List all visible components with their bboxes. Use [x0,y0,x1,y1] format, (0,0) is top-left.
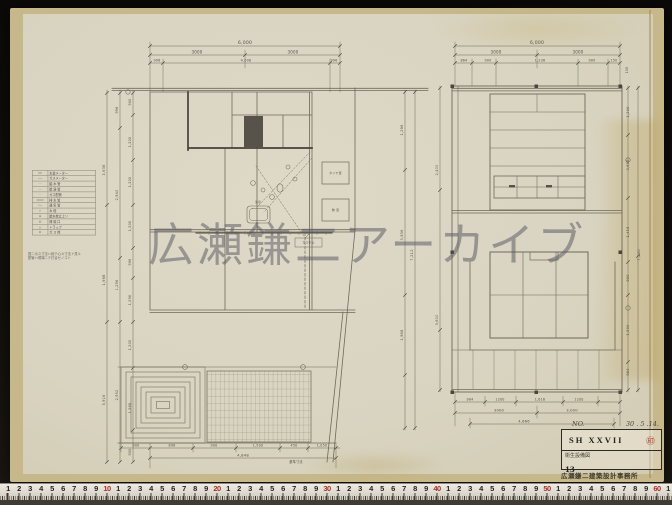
fixture-symbols [251,165,297,199]
dim-label: 3,936 [102,164,106,176]
legend-label: ガ ス 栓 [48,230,96,235]
offset-border [470,262,615,350]
ruler-number: 7 [292,484,296,493]
shaft-fill [244,116,263,147]
ruler-number: 40 [433,484,440,493]
ruler-number: 60 [653,484,660,493]
dim-label: 2,940 [115,190,119,201]
drawing-subtitle: 衛生設備図 [565,452,658,459]
ruler-number: 3 [28,484,32,493]
dim-label: 3,600 [626,159,630,170]
dim-label: 1,296 [115,280,119,291]
ruler-number: 8 [413,484,417,493]
ruler-number: 4 [149,484,153,493]
dim-label: 4,848 [237,453,249,458]
ruler-number: 10 [103,484,110,493]
dim-label: 864 [460,59,467,63]
dim-label: 984 [467,398,474,402]
ruler-number: 8 [523,484,527,493]
dim-label: 1,200 [626,106,630,117]
ruler-number: 5 [490,484,494,493]
dim-label: 1,500 [253,444,263,448]
ruler-number: 7 [622,484,626,493]
dim-label: 900 [484,59,491,63]
dim-label: 450 [291,444,298,448]
dim-label: 3000 [288,50,299,55]
ruler-number: 2 [457,484,461,493]
dim-label: 2,400 [435,165,439,176]
ruler-number: 9 [94,484,98,493]
dim-label: 1,236 [535,59,546,63]
upper-room [490,94,585,210]
dim-label: 1,296 [128,295,132,305]
ruler-number: 8 [193,484,197,493]
ruler-number: 7 [72,484,76,493]
dim-label: 4,666 [518,420,530,424]
ruler-number: 1 [446,484,450,493]
ruler-number: 4 [589,484,593,493]
dim-label: 900 [133,444,140,448]
dim-label: 3000 [491,50,502,55]
drawing-photo: 6,000300030009964,0089963,9361,9685,9169… [0,0,672,505]
date: 30 . 5 .14. [626,420,659,428]
dim-label: 1,500 [626,324,630,335]
ruler-number: 3 [358,484,362,493]
dim-label: 1,968 [128,403,132,413]
dim-label: 基準寸法 [289,459,303,464]
dim-label: 900 [626,274,630,281]
archive-watermark: 広瀬鎌二アーカイブ [148,220,568,272]
ruler-number: 8 [83,484,87,493]
ruler-number: 50 [543,484,550,493]
dim-label: 150 [625,67,629,74]
dim-label: 2,952 [115,390,119,401]
dim-label: 1,416 [626,226,630,237]
ruler-number: 2 [127,484,131,493]
legend-row: ⊙ガ ス 栓 [32,230,95,235]
hatched-grid [207,371,311,442]
ruler-number: 3 [578,484,582,493]
ruler-number: 9 [314,484,318,493]
ruler-number: 4 [259,484,263,493]
dim-label: 3000 [494,409,505,413]
ruler-number: 5 [160,484,164,493]
note-line: 配管ハ現場ニテ打合セノコト [28,256,105,260]
ruler-number: 3 [248,484,252,493]
dim-label: 1,968 [400,329,404,340]
ruler-number: 1 [556,484,560,493]
legend-table: ━━水道メーター──ガスメーター‐ ‐給 水 管-·-給 湯 管····ガス配管… [32,170,96,235]
dim-label: 898 [169,444,176,448]
ruler-number: 7 [182,484,186,493]
dim-label: 1,968 [102,274,106,286]
ruler-number: 1 [666,484,670,493]
site-boundary-line [112,88,428,90]
ruler-number: 9 [644,484,648,493]
ruler-number: 4 [369,484,373,493]
dim-label: 物 置 [332,207,340,212]
ruler-number: 5 [50,484,54,493]
backdrop-strip [0,500,672,505]
dim-label: 浴室 [255,200,261,204]
dim-label: 900 [128,99,132,106]
ruler-number: 8 [303,484,307,493]
dim-label: 996 [115,106,119,113]
ruler-number: 5 [600,484,604,493]
dim-label: 1,050 [317,444,327,448]
measuring-tape: 1234567891012345678920123456789301234567… [0,483,672,500]
dim-label: 996 [153,59,160,63]
ruler-number: 6 [501,484,505,493]
office-stamp: 広瀬鎌二建築設計事務所 [561,470,662,480]
ruler-number: 4 [39,484,43,493]
dim-label: 5,916 [102,395,106,406]
ruler-number: 2 [567,484,571,493]
drawing-title-box: 衛生設備図 13 [561,451,662,470]
ruler-number: 6 [171,484,175,493]
ruler-number: 7 [512,484,516,493]
dim-label: 996 [330,59,337,63]
ruler-number: 1 [116,484,120,493]
dim-label: 996 [128,259,132,266]
dim-label: 900 [588,59,595,63]
dim-label: タイヤ置 [329,170,342,175]
ruler-number: 8 [633,484,637,493]
ruler-number: 6 [61,484,65,493]
dim-label: 3000 [573,50,584,55]
legend-symbol: ⊙ [32,230,48,235]
ruler-number: 1 [336,484,340,493]
dim-label: 1200 [495,398,504,402]
dim-label: 1200 [574,398,583,402]
ruler-number: 9 [534,484,538,493]
dim-label: 6,000 [530,40,544,46]
no-label: NO. [572,420,585,428]
ruler-number: 7 [402,484,406,493]
ruler-number: 4 [479,484,483,493]
dim-label: 984 [626,368,630,376]
ruler-number: 6 [611,484,615,493]
ruler-number: 30 [323,484,330,493]
ruler-number: 1 [6,484,10,493]
dim-label: 7,200 [637,249,641,261]
ruler-number: 9 [424,484,428,493]
ruler-number: 3 [468,484,472,493]
concentric-square-motif [121,367,205,443]
dim-label: 3,600 [435,315,439,326]
ruler-number: 2 [347,484,351,493]
ruler-number: 6 [281,484,285,493]
ruler-number: 2 [237,484,241,493]
ruler-number: 2 [17,484,21,493]
ruler-number: 5 [380,484,384,493]
ruler-number: 1 [226,484,230,493]
approval-stamp-icon: ㊞ [646,434,655,447]
dim-label: 3000 [192,50,203,55]
ruler-number: 3 [138,484,142,493]
ruler-number: 20 [213,484,220,493]
dim-label: 900 [211,444,218,448]
dim-label: 1,296 [400,124,404,135]
dim-label: 900 [128,449,132,456]
dim-label: 4,008 [241,59,252,63]
handwritten-note: 図ニ示ス寸法ハ総テ心々寸法ト見ル 配管ハ現場ニテ打合セノコト [28,252,105,261]
title-block: NO. 30 . 5 .14. SH XXVII ㊞ 衛生設備図 13 広瀬鎌二… [561,420,662,480]
ruler-number: 9 [204,484,208,493]
drawing-code-box: SH XXVII ㊞ [561,429,662,451]
dim-label: 1,200 [128,177,132,187]
dim-label: 6,000 [238,40,252,46]
dim-label: 150 [611,59,618,63]
ruler-number: 5 [270,484,274,493]
dim-label: 1,616 [535,398,545,402]
drawing-code: SH XXVII [562,435,624,445]
dim-label: 1,200 [128,340,132,350]
dim-label: 3,000 [566,409,578,413]
ruler-number: 6 [391,484,395,493]
dim-label: 1,500 [128,221,132,231]
dim-label: 1,200 [128,137,132,147]
